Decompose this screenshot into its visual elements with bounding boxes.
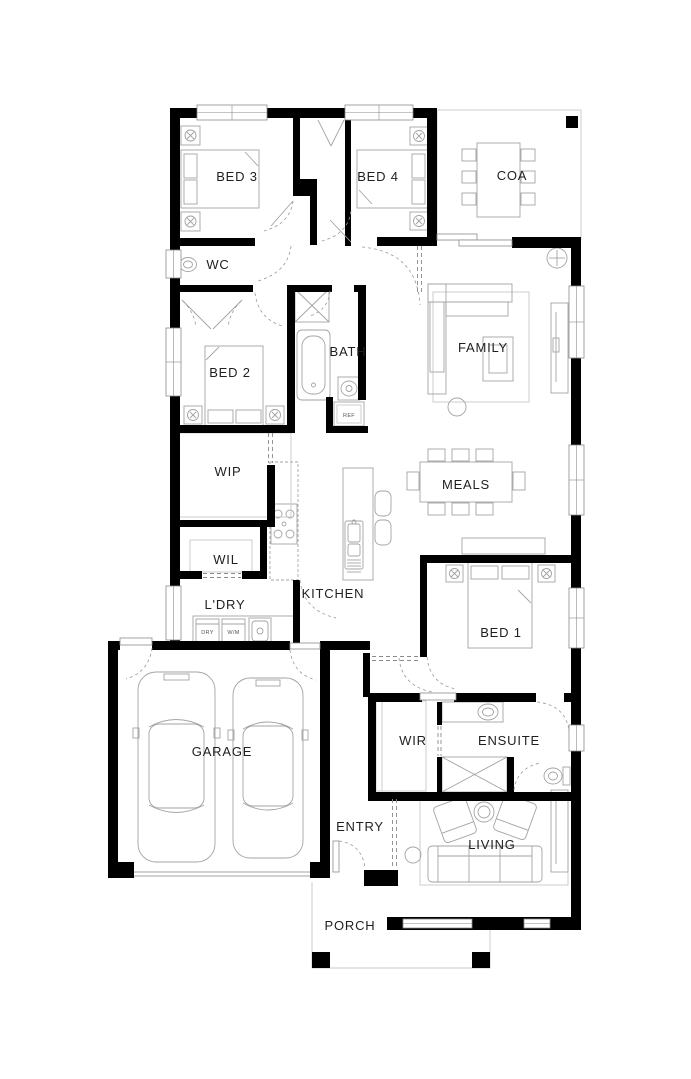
window [403, 919, 472, 928]
front-door [333, 841, 339, 872]
kitchen-fixtures [270, 462, 391, 580]
window [166, 586, 181, 640]
laundry-garage-door [120, 638, 152, 645]
room-label-living: LIVING [468, 837, 515, 852]
room-label-bed1: BED 1 [480, 625, 522, 640]
window [197, 105, 267, 120]
floor-plan-drawing: BED 3 BED 4 COA WC BATH FAMILY BED 2 WIP… [0, 0, 691, 1079]
appliance-label-fridge: REF [343, 413, 355, 419]
hall-linen-doors [318, 120, 344, 146]
appliance-label-washer: W/M [227, 630, 239, 636]
entry-garage-door [290, 643, 320, 649]
room-label-wc: WC [206, 257, 229, 272]
room-label-entry: ENTRY [336, 819, 384, 834]
window [166, 328, 181, 396]
room-label-wil: WIL [213, 552, 239, 567]
room-label-ldry: L'DRY [205, 597, 246, 612]
room-label-coa: COA [497, 168, 528, 183]
window [569, 445, 584, 515]
cavity-slider-wir [420, 693, 456, 700]
room-label-bath: BATH [330, 344, 367, 359]
garage-cars [133, 672, 308, 862]
room-label-bed2: BED 2 [209, 365, 251, 380]
room-label-wir: WIR [399, 733, 427, 748]
garage-door [134, 872, 310, 876]
windows-layer [166, 105, 584, 928]
family-furniture [428, 248, 568, 416]
room-label-ensuite: ENSUITE [478, 733, 540, 748]
furniture-layer [133, 120, 570, 885]
floor-plan-page: BED 3 BED 4 COA WC BATH FAMILY BED 2 WIP… [0, 0, 691, 1079]
window [569, 725, 584, 751]
room-label-garage: GARAGE [192, 744, 252, 759]
window [569, 286, 584, 358]
window [524, 919, 550, 928]
room-label-meals: MEALS [442, 477, 490, 492]
sliding-door-coa [437, 234, 512, 246]
room-label-bed4: BED 4 [357, 169, 399, 184]
room-label-bed3: BED 3 [216, 169, 258, 184]
appliance-label-dryer: DRY [201, 630, 213, 636]
labels-layer: BED 3 BED 4 COA WC BATH FAMILY BED 2 WIP… [192, 168, 540, 933]
window [345, 105, 413, 120]
window [166, 250, 181, 278]
room-label-porch: PORCH [325, 918, 376, 933]
window [569, 588, 584, 648]
room-label-kitchen: KITCHEN [302, 586, 365, 601]
room-label-family: FAMILY [458, 340, 508, 355]
room-label-wip: WIP [215, 464, 242, 479]
